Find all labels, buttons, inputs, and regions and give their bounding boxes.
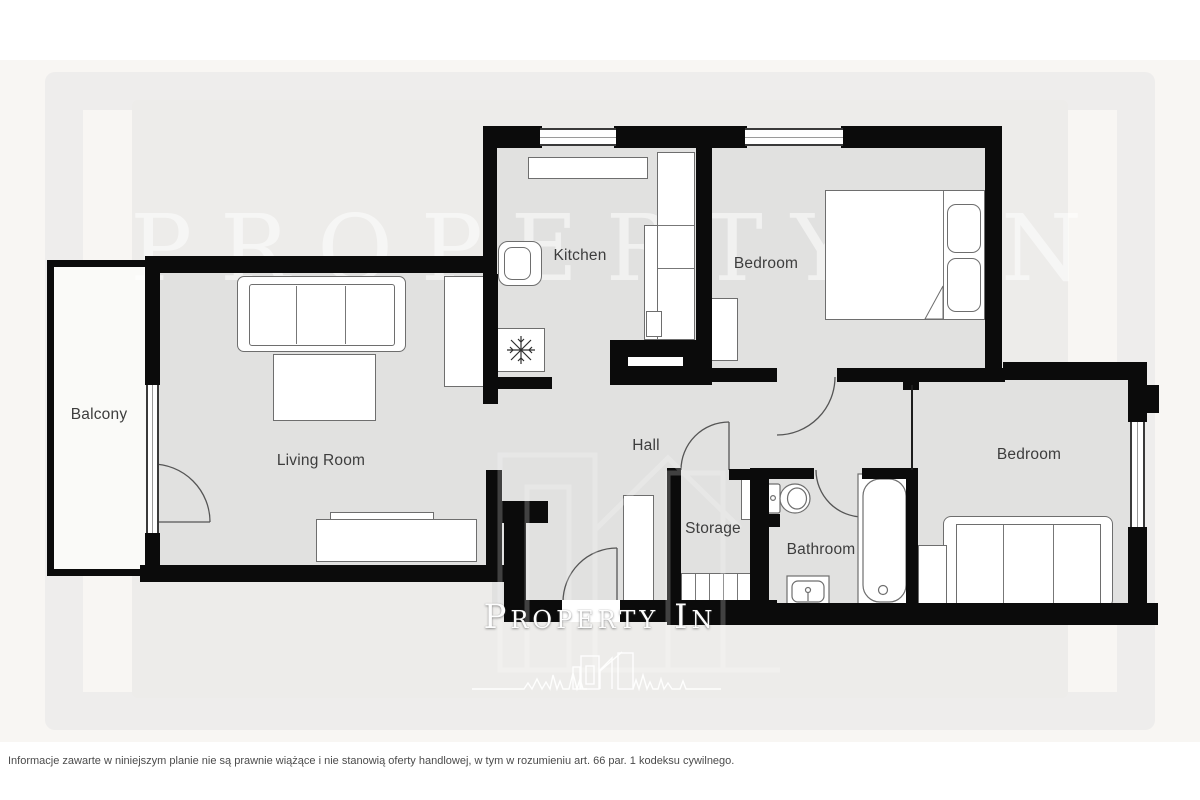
bedroom1-door-arc: [777, 377, 835, 435]
room-label-bedroom-1: Bedroom: [734, 255, 798, 273]
balcony-door-arc: [152, 464, 210, 522]
open-partition-line: [911, 385, 913, 470]
bathtub: [858, 474, 911, 607]
room-label-kitchen: Kitchen: [553, 247, 606, 265]
room-label-bathroom: Bathroom: [787, 541, 856, 559]
snowflake-icon: [507, 336, 535, 364]
toilet: [766, 484, 810, 513]
room-label-balcony: Balcony: [71, 406, 128, 424]
bedroom2-window: [1130, 422, 1145, 527]
room-label-hall: Hall: [632, 437, 660, 455]
kitchen-window: [540, 128, 616, 146]
bedroom1-window: [745, 128, 843, 146]
room-label-bedroom-2: Bedroom: [997, 446, 1061, 464]
watermark-brand: Property In: [400, 597, 800, 637]
storage-door-arc: [681, 422, 729, 470]
kitchen-hatch: [628, 357, 683, 366]
fixtures-and-doors: [0, 0, 1200, 800]
entrance-door-arc: [563, 548, 617, 602]
room-label-living: Living Room: [277, 452, 365, 470]
blanket-fold: [925, 286, 943, 319]
balcony-door-window: [146, 385, 159, 533]
bathroom-door-arc: [816, 470, 863, 517]
room-label-storage: Storage: [685, 520, 741, 538]
disclaimer-text: Informacje zawarte w niniejszym planie n…: [8, 755, 734, 767]
floorplan-page: PROPERTY IN: [0, 0, 1200, 800]
